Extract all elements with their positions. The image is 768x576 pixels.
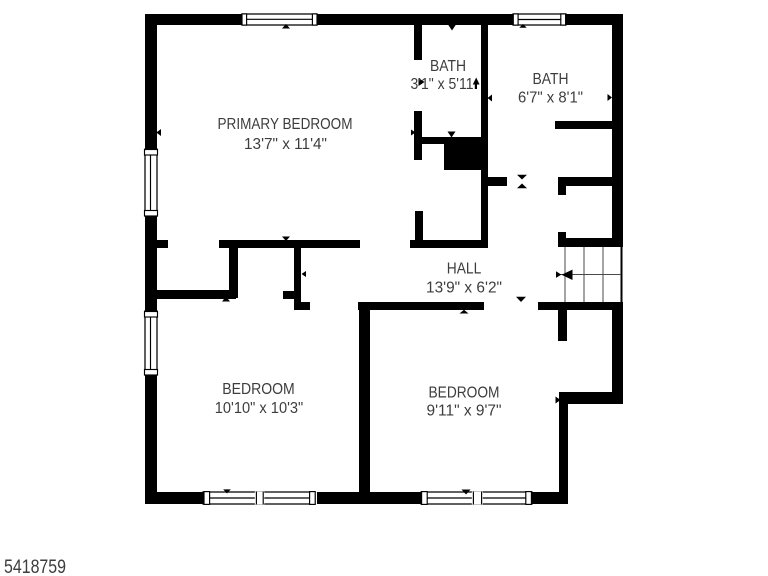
svg-text:13'7" x 11'4": 13'7" x 11'4" xyxy=(244,136,327,153)
svg-text:HALL: HALL xyxy=(447,261,482,278)
svg-text:BATH: BATH xyxy=(533,71,569,88)
svg-text:5418759: 5418759 xyxy=(4,557,66,576)
svg-text:BATH: BATH xyxy=(430,58,466,75)
svg-text:3'1" x 5'11: 3'1" x 5'11 xyxy=(411,76,474,93)
svg-text:PRIMARY BEDROOM: PRIMARY BEDROOM xyxy=(218,116,353,133)
svg-text:BEDROOM: BEDROOM xyxy=(429,385,500,402)
svg-text:9'11" x 9'7": 9'11" x 9'7" xyxy=(427,403,502,420)
svg-text:BEDROOM: BEDROOM xyxy=(222,381,295,398)
svg-text:13'9" x 6'2": 13'9" x 6'2" xyxy=(426,279,502,296)
svg-text:6'7" x 8'1": 6'7" x 8'1" xyxy=(518,89,583,106)
svg-text:10'10" x 10'3": 10'10" x 10'3" xyxy=(215,400,304,417)
